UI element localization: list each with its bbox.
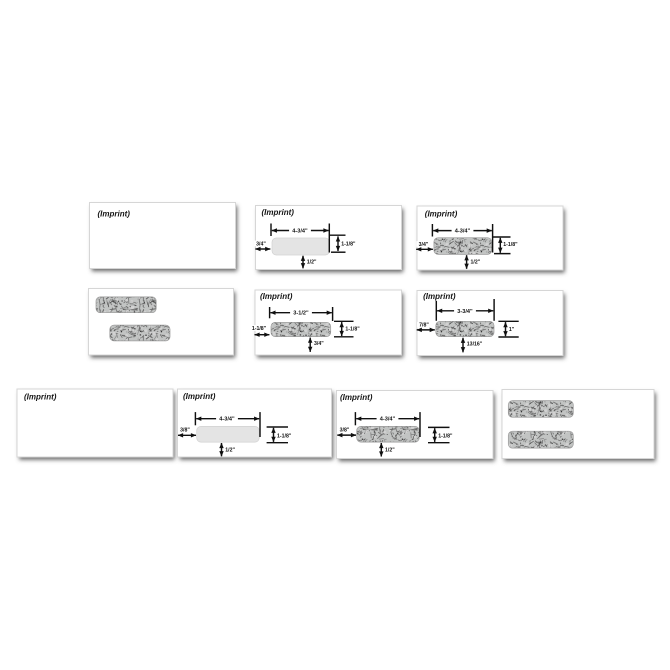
svg-text:(Imprint): (Imprint) bbox=[340, 393, 373, 402]
svg-text:(Imprint): (Imprint) bbox=[98, 210, 131, 219]
svg-text:1-1/8": 1-1/8" bbox=[277, 433, 292, 439]
svg-text:1/2": 1/2" bbox=[385, 447, 395, 453]
svg-text:4-3/4": 4-3/4" bbox=[292, 229, 308, 235]
svg-text:3-3/4": 3-3/4" bbox=[457, 309, 473, 315]
svg-text:(Imprint): (Imprint) bbox=[423, 292, 456, 301]
svg-text:3/4": 3/4" bbox=[256, 241, 266, 247]
svg-text:(Imprint): (Imprint) bbox=[24, 392, 57, 401]
svg-text:3/4": 3/4" bbox=[419, 242, 429, 248]
svg-text:1-1/8": 1-1/8" bbox=[438, 433, 453, 439]
svg-text:1": 1" bbox=[509, 327, 515, 333]
svg-text:13/16": 13/16" bbox=[467, 342, 483, 348]
svg-text:1/2": 1/2" bbox=[307, 260, 317, 266]
svg-text:4-3/4": 4-3/4" bbox=[380, 417, 396, 423]
svg-text:1-1/8": 1-1/8" bbox=[252, 326, 267, 332]
svg-text:1-1/8": 1-1/8" bbox=[341, 241, 356, 247]
svg-text:1-1/8": 1-1/8" bbox=[503, 242, 518, 248]
svg-text:(Imprint): (Imprint) bbox=[425, 210, 458, 219]
svg-text:(Imprint): (Imprint) bbox=[260, 292, 293, 301]
svg-text:(Imprint): (Imprint) bbox=[183, 392, 216, 401]
svg-text:3/8": 3/8" bbox=[340, 428, 350, 434]
svg-text:1/2": 1/2" bbox=[225, 447, 235, 453]
svg-text:3/8": 3/8" bbox=[180, 428, 190, 434]
svg-text:4-3/4": 4-3/4" bbox=[455, 229, 471, 235]
svg-text:3-1/2": 3-1/2" bbox=[293, 311, 309, 317]
svg-text:(Imprint): (Imprint) bbox=[262, 208, 295, 217]
svg-text:1-1/8": 1-1/8" bbox=[345, 326, 360, 332]
svg-text:7/8": 7/8" bbox=[419, 323, 429, 329]
svg-text:4-3/4": 4-3/4" bbox=[219, 417, 235, 423]
svg-text:1/2": 1/2" bbox=[471, 260, 481, 266]
svg-text:3/4": 3/4" bbox=[314, 341, 324, 347]
